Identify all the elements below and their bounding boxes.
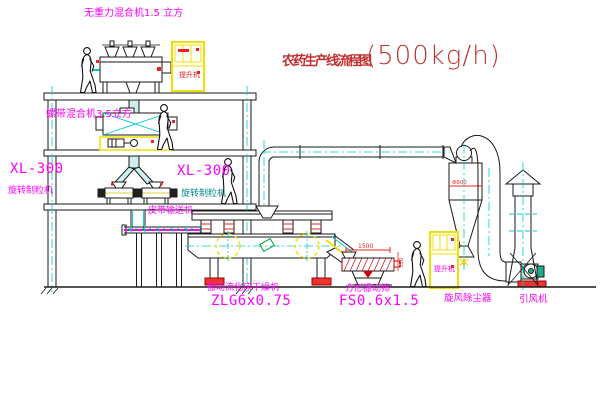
sieve-dim-length: 1500 [358,243,373,250]
page-title: 农药生产线流程图 [282,55,370,68]
dryer-model-label: ZLG6x0.75 [211,294,291,308]
granulators-drawing [98,182,177,204]
bucket-elevator-right-drawing: 提升机 [430,232,458,288]
fan-label: 引风机 [519,295,548,305]
sieve-dim-height: 350 [399,257,405,268]
page-title-capacity: (500kg/h) [366,43,501,69]
top-mixer-drawing [92,41,171,93]
dryer-drawing [185,206,352,285]
cyclone-label: 旋风除尘器 [444,294,492,304]
stack-drawing [506,162,540,290]
left-granulator-name: 旋转制粒机 [8,187,53,196]
exhaust-duct-drawing [259,140,456,206]
belt-conveyor-label: 皮带输送机 [148,207,193,216]
sieve-model-label: FS0.6x1.5 [339,294,419,308]
y-duct-drawing [115,156,153,184]
mid-mixer-label: 螺带混合机3.5立方 [46,110,132,120]
mid-granulator-model: XL-300 [177,164,231,178]
bucket-elevator-top-drawing: 提升机 [172,42,204,91]
elevator-top-label: 提升机 [179,70,200,79]
cyclone-dim-label: Φ600 [452,180,467,186]
mid-granulator-name: 旋转制粒机 [181,190,226,199]
top-mixer-label: 无重力混合机1.5 立方 [84,9,183,19]
cad-drawing: 提升机 [0,0,600,403]
dryer-name-label: 振动流化床干燥机 [207,284,279,293]
person-icon [411,242,427,287]
left-granulator-model: XL-300 [10,162,64,176]
